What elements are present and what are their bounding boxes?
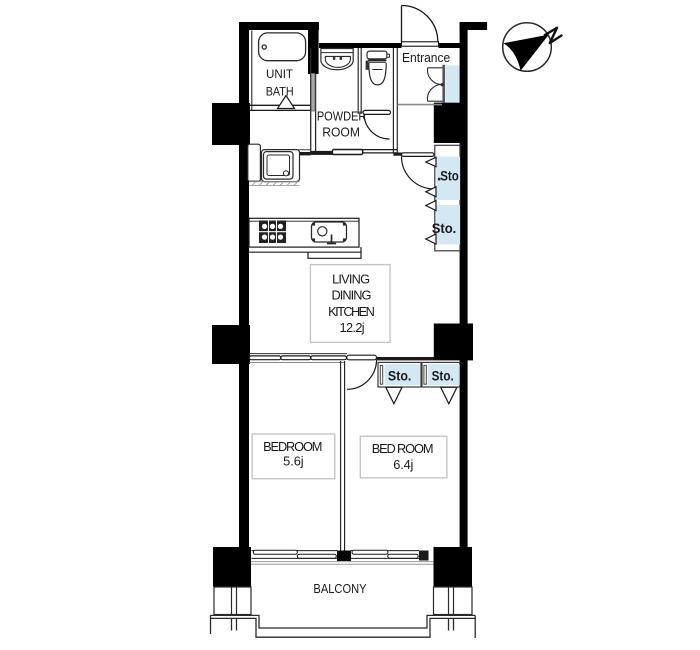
svg-text:Entrance: Entrance (402, 50, 450, 65)
svg-text:Sto.: Sto. (388, 369, 412, 384)
svg-text:BALCONY: BALCONY (313, 582, 367, 596)
svg-text:POWDER: POWDER (317, 109, 367, 124)
svg-text:KITCHEN: KITCHEN (328, 304, 375, 319)
svg-text:ROOM: ROOM (322, 125, 360, 140)
svg-text:UNIT: UNIT (266, 67, 294, 81)
svg-text:BEDROOM: BEDROOM (263, 439, 322, 454)
svg-text:LIVING: LIVING (332, 271, 370, 286)
svg-text:BATH: BATH (266, 84, 294, 98)
svg-text:6.4j: 6.4j (393, 457, 413, 472)
svg-text:Sto: Sto (440, 168, 459, 184)
svg-text:BED ROOM: BED ROOM (372, 441, 434, 456)
svg-text:Sto.: Sto. (432, 369, 454, 384)
svg-text:DINING: DINING (332, 288, 372, 303)
svg-text:Sto.: Sto. (432, 220, 457, 236)
svg-text:5.6j: 5.6j (283, 454, 304, 469)
svg-text:12.2j: 12.2j (340, 320, 365, 335)
